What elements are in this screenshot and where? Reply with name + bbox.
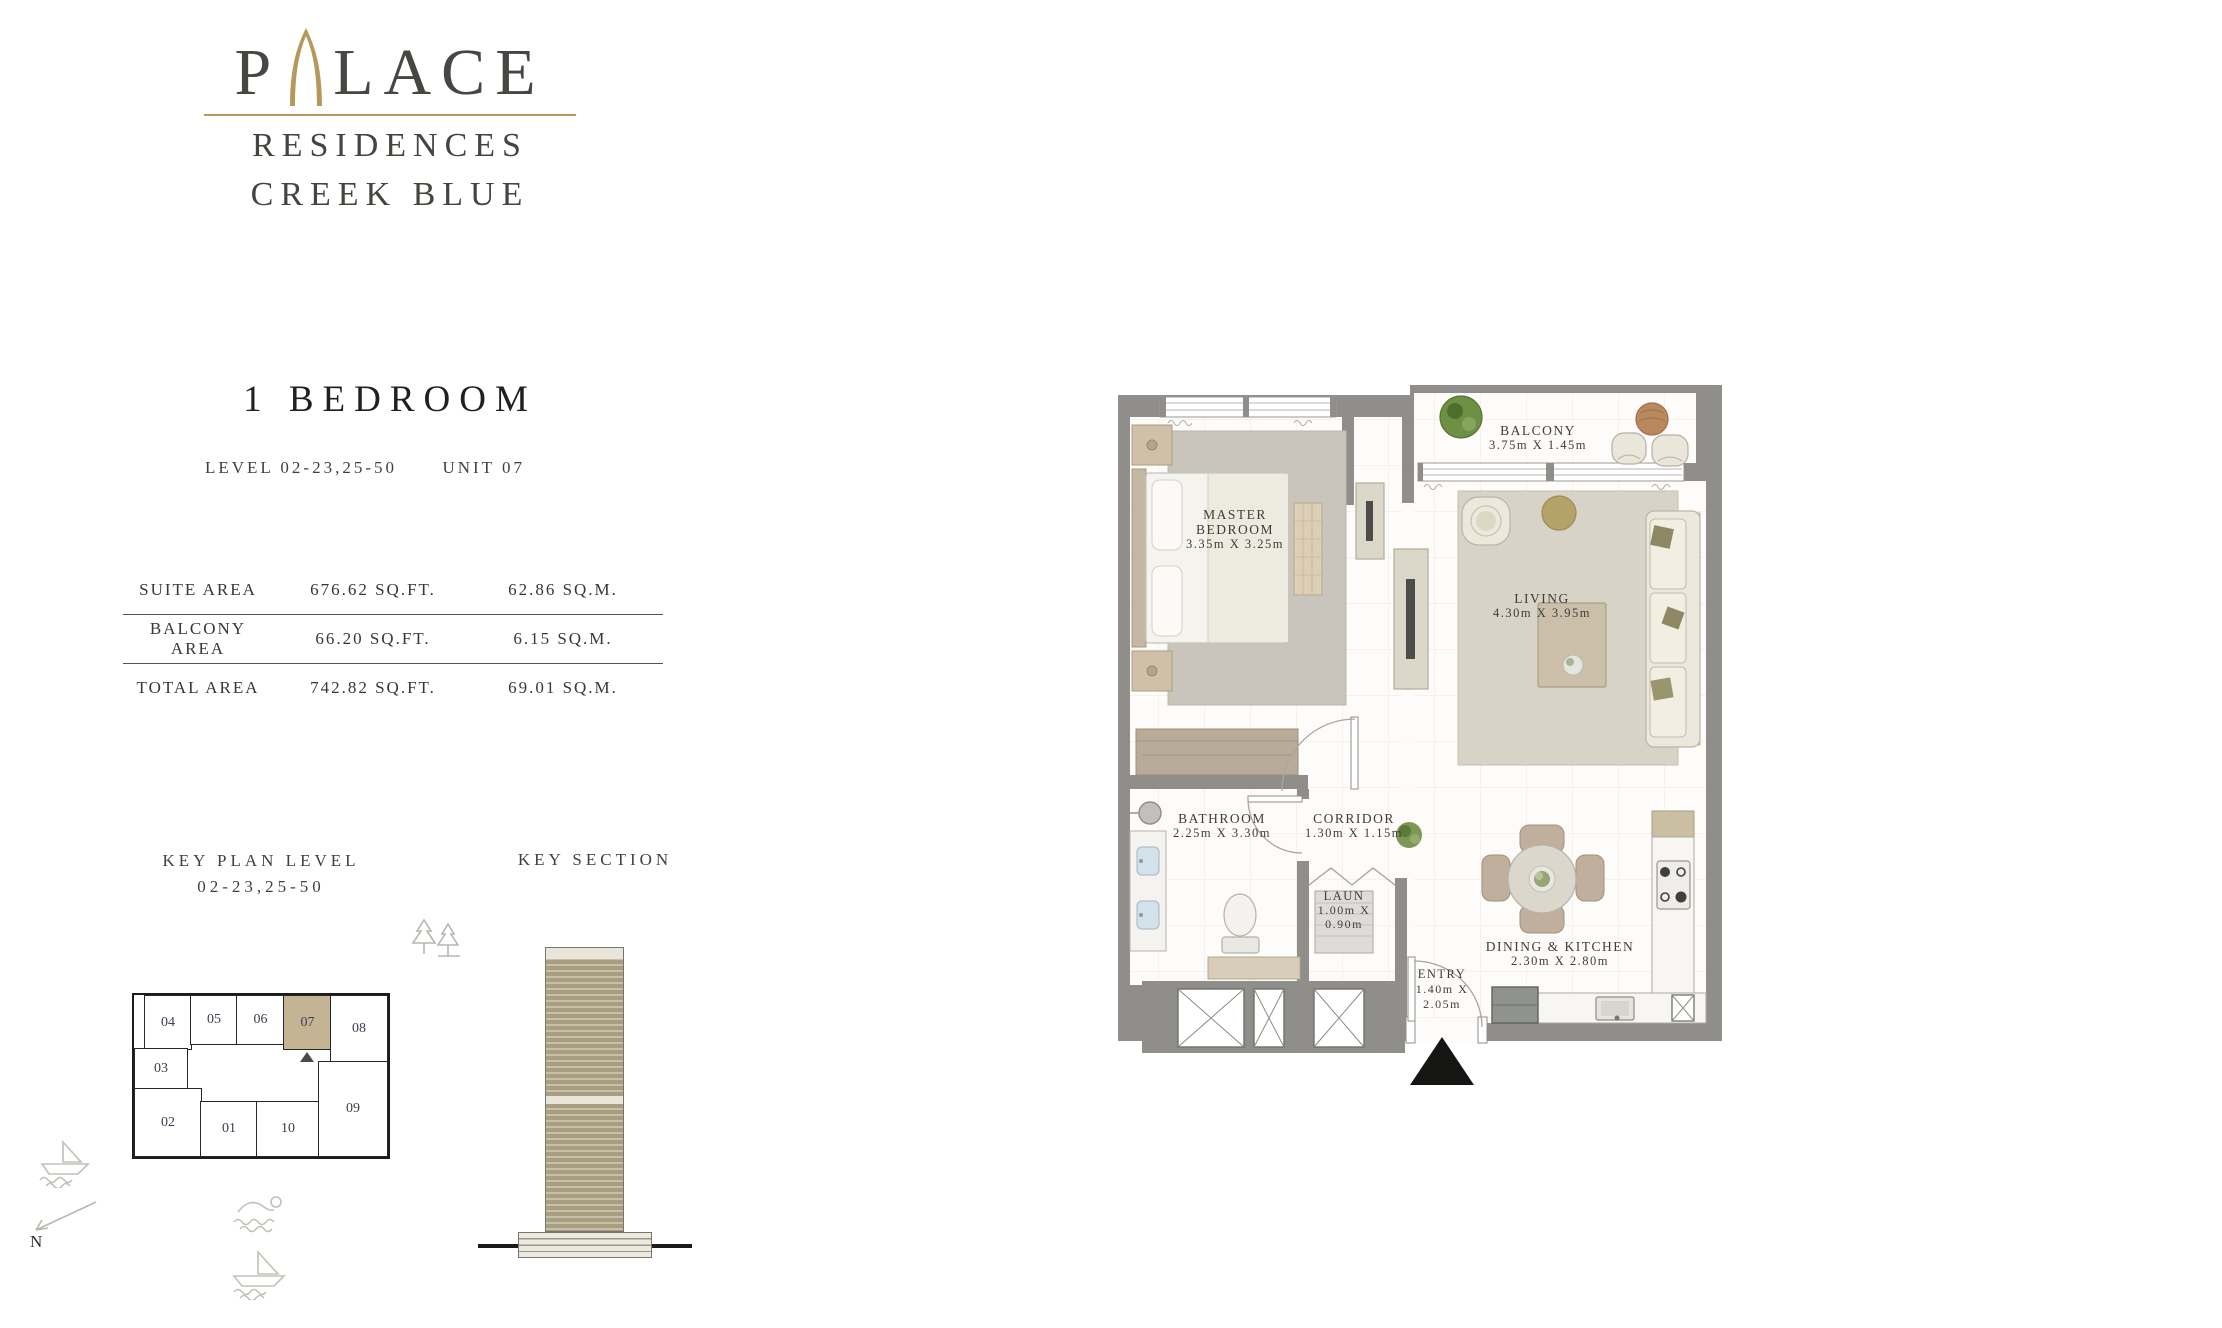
room-dims: 2.25m X 3.30m [1173, 826, 1271, 841]
key-plan-unit-05: 05 [190, 995, 238, 1045]
key-plan-title: KEY PLAN LEVEL 02-23,25-50 [130, 848, 392, 900]
area-row-sqm: 6.15 SQ.M. [473, 629, 653, 649]
area-row-sqft: 676.62 SQ.FT. [273, 580, 473, 600]
key-section-title: KEY SECTION [500, 850, 690, 870]
boat-icon [36, 1136, 96, 1193]
key-plan-unit-10: 10 [256, 1101, 320, 1157]
room-name: DINING & KITCHEN [1486, 939, 1634, 954]
key-plan-diagram: 04 05 06 07 08 03 02 01 10 09 [132, 993, 390, 1159]
room-dims: 2.05m [1416, 997, 1469, 1012]
level-label: LEVEL 02-23,25-50 [205, 458, 397, 478]
brand-line-creek-blue: CREEK BLUE [150, 176, 630, 214]
brand-word-start: P [234, 40, 281, 106]
room-label-corridor: CORRIDOR 1.30m X 1.15m [1305, 811, 1403, 841]
unit-label: UNIT 07 [442, 458, 525, 478]
room-dims: 1.40m X [1416, 982, 1469, 997]
area-row-label: SUITE AREA [123, 580, 273, 600]
brand-wordmark: P LACE [150, 26, 630, 106]
brand-line-residences: RESIDENCES [150, 127, 630, 165]
floor-plan: MASTER BEDROOM 3.35m X 3.25m BALCONY 3.7… [1112, 373, 1742, 1113]
room-label-laundry: LAUN 1.00m X 0.90m [1318, 889, 1371, 931]
tower-roof-band [546, 948, 623, 959]
room-dims: 2.30m X 2.80m [1486, 954, 1634, 969]
level-unit-row: LEVEL 02-23,25-50 UNIT 07 [205, 458, 525, 478]
unit-triangle-icon [300, 1052, 314, 1062]
room-name: ENTRY [1416, 967, 1469, 982]
area-table: SUITE AREA 676.62 SQ.FT. 62.86 SQ.M. BAL… [123, 566, 663, 712]
key-plan-unit-06: 06 [236, 995, 285, 1045]
area-row-sqft: 742.82 SQ.FT. [273, 678, 473, 698]
table-row: TOTAL AREA 742.82 SQ.FT. 69.01 SQ.M. [123, 664, 663, 712]
table-row: SUITE AREA 676.62 SQ.FT. 62.86 SQ.M. [123, 566, 663, 615]
room-dims: 3.35m X 3.25m [1186, 537, 1284, 552]
page-title: 1 BEDROOM [150, 378, 630, 421]
key-plan-title-line1: KEY PLAN LEVEL [130, 848, 392, 874]
room-name: CORRIDOR [1305, 811, 1403, 826]
key-plan-unit-03: 03 [134, 1048, 188, 1090]
table-row: BALCONY AREA 66.20 SQ.FT. 6.15 SQ.M. [123, 615, 663, 664]
key-plan-unit-09: 09 [318, 1061, 388, 1157]
room-label-entry: ENTRY 1.40m X 2.05m [1416, 967, 1469, 1012]
area-row-sqm: 62.86 SQ.M. [473, 580, 653, 600]
key-plan-unit-07-highlighted: 07 [283, 995, 332, 1050]
area-row-sqm: 69.01 SQ.M. [473, 678, 653, 698]
arch-icon [283, 26, 329, 108]
room-label-bathroom: BATHROOM 2.25m X 3.30m [1173, 811, 1271, 841]
room-dims: 4.30m X 3.95m [1493, 606, 1591, 621]
room-name: BATHROOM [1173, 811, 1271, 826]
key-section-podium [518, 1232, 652, 1258]
area-row-sqft: 66.20 SQ.FT. [273, 629, 473, 649]
room-name: MASTER [1186, 507, 1284, 522]
room-dims: 3.75m X 1.45m [1489, 438, 1587, 453]
room-dims: 1.00m X [1318, 903, 1371, 917]
brand-divider [204, 114, 576, 116]
room-name: BALCONY [1489, 423, 1587, 438]
room-dims: 0.90m [1318, 917, 1371, 931]
trees-icon [408, 916, 466, 967]
room-label-balcony: BALCONY 3.75m X 1.45m [1489, 423, 1587, 453]
boat-icon [228, 1246, 292, 1305]
room-label-master-bedroom: MASTER BEDROOM 3.35m X 3.25m [1186, 507, 1284, 552]
brochure-page: P LACE RESIDENCES CREEK BLUE 1 BEDROOM L… [0, 0, 2222, 1328]
north-label: N [30, 1232, 42, 1252]
area-row-label: TOTAL AREA [123, 678, 273, 698]
key-plan-unit-08: 08 [330, 995, 388, 1063]
key-plan-unit-01: 01 [200, 1101, 258, 1157]
room-name: BEDROOM [1186, 522, 1284, 537]
room-name: LAUN [1318, 889, 1371, 903]
key-section-tower [545, 947, 624, 1232]
brand-word-end: LACE [333, 40, 545, 106]
room-label-dining-kitchen: DINING & KITCHEN 2.30m X 2.80m [1486, 939, 1634, 969]
room-name: LIVING [1493, 591, 1591, 606]
tower-light-band [546, 1096, 623, 1104]
area-row-label: BALCONY AREA [123, 619, 273, 659]
key-plan-unit-02: 02 [134, 1088, 202, 1157]
room-label-living: LIVING 4.30m X 3.95m [1493, 591, 1591, 621]
swimmer-icon [230, 1190, 294, 1241]
brand-logo: P LACE RESIDENCES CREEK BLUE [150, 26, 630, 214]
room-dims: 1.30m X 1.15m [1305, 826, 1403, 841]
key-plan-unit-04: 04 [144, 995, 192, 1050]
key-plan-title-line2: 02-23,25-50 [130, 874, 392, 900]
